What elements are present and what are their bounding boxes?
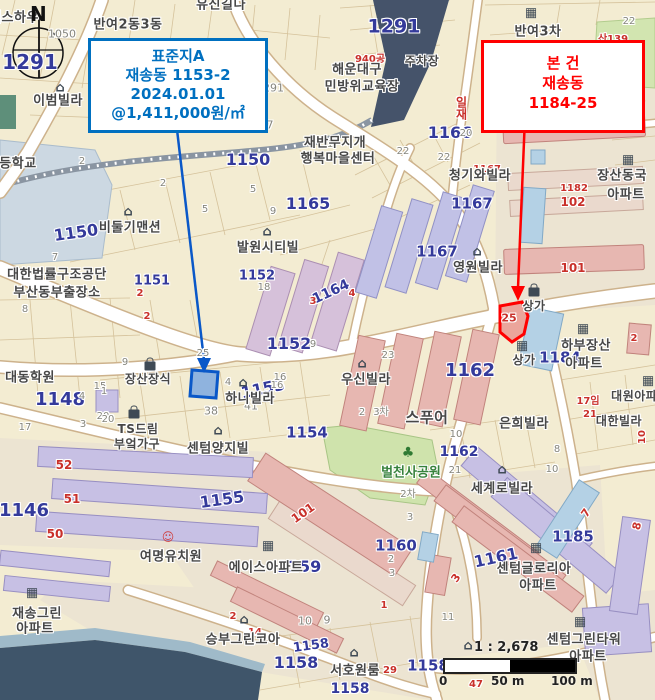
- parcel-number: 18: [258, 283, 271, 293]
- parcel-number: 1150: [53, 222, 99, 244]
- parcel-number: 5: [250, 185, 256, 195]
- parcel-number: 23: [382, 351, 395, 361]
- parcel-number: 101: [560, 262, 585, 274]
- parcel-number: 4: [225, 378, 231, 388]
- parcel-number: 1154: [286, 426, 328, 441]
- parcel-number: 1182: [560, 184, 588, 194]
- scale-tick-50: 50 m: [491, 674, 524, 688]
- place-label: 부엌가구: [114, 438, 160, 450]
- parcel-number: 29: [383, 666, 397, 676]
- parcel-number: 51: [64, 493, 81, 505]
- parcel-number: 1050: [48, 29, 76, 40]
- parcel-number: 3: [80, 420, 86, 430]
- place-label: 승부그린코아: [206, 634, 281, 647]
- parcel-number: 10: [638, 430, 648, 444]
- building-icon: ▦: [262, 540, 274, 553]
- subject-title: 본 건: [484, 53, 642, 73]
- parcel-number: 3차: [373, 408, 389, 418]
- parcel-number: 1148: [35, 391, 85, 409]
- parcel-number: 1146: [0, 502, 49, 520]
- parcel-number: 1152: [267, 336, 312, 352]
- place-label: 유신길다: [196, 0, 246, 12]
- parcel-number: 4: [79, 392, 85, 402]
- place-label: 주차장: [405, 55, 440, 67]
- place-label: 반여3차: [515, 26, 562, 39]
- place-label: 아파트: [607, 189, 644, 202]
- building-icon: ▦: [530, 542, 542, 555]
- place-label: 상가: [512, 354, 535, 366]
- compass-north-label: N: [30, 2, 47, 26]
- parcel-number: 2: [388, 555, 394, 565]
- parcel-number: 10: [546, 465, 559, 475]
- parcel-number: 25: [501, 313, 516, 324]
- building-icon: ▦: [525, 7, 537, 20]
- parcel-number: 21: [449, 466, 462, 476]
- place-label: 재송그린: [12, 608, 62, 621]
- standard-lot-address: 재송동 1153-2: [91, 66, 265, 85]
- building-icon: ▦: [516, 340, 528, 353]
- parcel-number: 1150: [226, 152, 271, 168]
- parcel-number: 3: [310, 297, 317, 307]
- parcel-number: 2: [631, 334, 638, 344]
- place-label: 재반무지개: [304, 137, 366, 150]
- house-icon: ⌂: [123, 206, 132, 219]
- parcel-number: 25: [197, 349, 210, 359]
- parcel-number: 101: [289, 501, 316, 525]
- cadastral-map: N 12911291116611671167115011501165116411…: [0, 0, 655, 700]
- parcel-number: 8: [631, 521, 644, 531]
- parcel-number: 4: [349, 289, 356, 299]
- parcel-number: 50: [47, 528, 64, 540]
- building-icon: ▦: [622, 154, 634, 167]
- parcel-number: 5: [202, 205, 208, 215]
- parcel-number: 22: [438, 153, 451, 163]
- parcel-number: 1291: [2, 52, 58, 72]
- parcel-number: 17: [19, 423, 32, 433]
- place-label: 서호원룸: [330, 665, 380, 678]
- parcel-number: 1167: [416, 245, 458, 260]
- place-label: 아파트: [519, 580, 556, 593]
- parcel-number: 1167: [451, 197, 493, 212]
- building-icon: ▦: [577, 323, 589, 336]
- scale-bar: 1 : 2,678 0 50 m 100 m: [436, 640, 596, 692]
- place-label: 센텀글로리아: [497, 563, 572, 576]
- standard-lot-price: @1,411,000원/㎡: [91, 104, 265, 123]
- parcel-number: 2: [144, 312, 151, 322]
- parcel-number: 9: [324, 615, 331, 626]
- standard-lot-callout: 표준지A 재송동 1153-2 2024.01.01 @1,411,000원/㎡: [88, 38, 268, 133]
- parcel-number: 17임: [576, 397, 599, 407]
- bag-icon: [129, 410, 140, 419]
- building-icon: ▦: [26, 587, 38, 600]
- parcel-number: 11: [442, 613, 455, 623]
- parcel-number: 21: [583, 410, 597, 420]
- parcel-number: 20: [460, 129, 473, 139]
- parcel-number: 1158: [274, 655, 319, 671]
- place-label: 대동학원: [5, 372, 55, 385]
- place-label: 상가: [522, 300, 545, 312]
- place-label: 하니빌라: [225, 393, 275, 406]
- parcel-number: 38: [204, 406, 218, 417]
- place-label: 여명유치원: [140, 551, 202, 564]
- place-label: 등학교: [0, 158, 37, 171]
- parcel-number: 7: [579, 507, 592, 520]
- subject-lot-number: 1184-25: [484, 93, 642, 113]
- parcel-number: 7: [52, 253, 58, 263]
- parcel-number: 일재: [455, 96, 467, 120]
- place-label: 아파트: [16, 623, 53, 636]
- parcel-number: 9: [122, 358, 128, 368]
- parcel-number: 1162: [440, 445, 479, 459]
- parcel-number: 2: [137, 289, 144, 299]
- house-icon: ⌂: [239, 614, 248, 627]
- parcel-number: 20: [102, 415, 115, 425]
- parcel-number: 16: [274, 373, 287, 383]
- building-icon: ▦: [642, 375, 654, 388]
- parcel-number: 52: [56, 459, 73, 471]
- parcel-number: 2: [160, 179, 166, 189]
- house-icon: ⌂: [262, 226, 271, 239]
- parcel-number: 2: [79, 157, 85, 167]
- house-icon: ⌂: [213, 425, 222, 438]
- building-icon: ▦: [574, 616, 586, 629]
- parcel-number: 3: [407, 513, 413, 523]
- parcel-number: 9: [270, 207, 276, 217]
- parcel-number: 1185: [552, 530, 594, 545]
- place-label: 센텀양지빌: [187, 443, 249, 456]
- house-icon: ⌂: [497, 464, 506, 477]
- place-label: 장산장식: [125, 373, 171, 385]
- subject-dong: 재송동: [484, 73, 642, 93]
- scale-tick-0: 0: [439, 674, 447, 688]
- parcel-number: 8: [554, 445, 560, 455]
- standard-lot-date: 2024.01.01: [91, 85, 265, 104]
- place-label: 민방위교육장: [325, 81, 400, 94]
- tree-icon: ♣: [402, 446, 415, 460]
- parcel-number: 22: [397, 147, 410, 157]
- scale-track: [443, 658, 577, 674]
- bag-icon: [145, 362, 156, 371]
- place-label: 장산동국: [597, 170, 647, 183]
- scale-segment-black: [510, 660, 575, 672]
- parcel-number: 1291: [368, 18, 421, 37]
- place-label: 대원아파트: [611, 390, 655, 402]
- bag-icon: [529, 288, 540, 297]
- place-label: 은희빌라: [499, 418, 549, 431]
- place-label: 우신빌라: [341, 374, 391, 387]
- place-label: 행복마을센터: [301, 153, 376, 166]
- place-label: 세계로빌라: [471, 483, 533, 496]
- place-label: 벌천사공원: [381, 467, 441, 480]
- place-label: 에이스아파트: [229, 562, 304, 575]
- parcel-number: 1151: [134, 275, 170, 288]
- place-label: 대한법률구조공단: [7, 269, 107, 282]
- parcel-number: 1164: [310, 277, 351, 306]
- place-label: 영원빌라: [453, 262, 503, 275]
- subject-property-callout: 본 건 재송동 1184-25: [481, 40, 645, 133]
- place-label: 비둘기맨션: [99, 222, 161, 235]
- parcel-number: 8: [22, 305, 28, 315]
- place-label: 청기와빌라: [449, 170, 511, 183]
- parcel-number: 22: [623, 17, 636, 27]
- place-label: 스푸어: [406, 411, 449, 426]
- house-icon: ⌂: [357, 358, 366, 371]
- scale-tick-100: 100 m: [551, 674, 593, 688]
- parcel-number: 1162: [445, 362, 495, 380]
- place-label: 반여2동3동: [94, 19, 163, 32]
- parcel-number: 9: [310, 340, 316, 350]
- scale-ratio: 1 : 2,678: [474, 640, 538, 655]
- parcel-number: 2차: [400, 490, 416, 500]
- parcel-number: 102: [560, 196, 585, 208]
- parcel-number: 1: [381, 601, 388, 611]
- parcel-number: 1158: [331, 682, 370, 696]
- standard-lot-title: 표준지A: [91, 47, 265, 66]
- child-icon: ☺: [162, 531, 175, 543]
- place-label: 아파트: [565, 358, 602, 371]
- place-label: 하부장산: [561, 340, 611, 353]
- parcel-number: 3: [449, 572, 462, 585]
- house-icon: ⌂: [238, 377, 247, 390]
- scale-segment-white: [445, 660, 510, 672]
- parcel-number: 2: [359, 408, 365, 418]
- parcel-number: 1155: [199, 489, 245, 511]
- place-label: 해운대구: [332, 64, 382, 77]
- parcel-number: 1152: [239, 270, 275, 283]
- parcel-number: 1160: [375, 539, 417, 554]
- house-icon: ⌂: [349, 647, 358, 660]
- place-label: 이범빌라: [33, 95, 83, 108]
- place-label: 발원시티빌: [237, 242, 299, 255]
- place-label: TS드림: [118, 423, 159, 435]
- place-label: 부산동부출장소: [13, 287, 100, 300]
- parcel-number: 2: [230, 612, 237, 622]
- parcel-number: 10: [298, 616, 312, 627]
- place-label: 대한빌라: [596, 415, 642, 427]
- house-icon: ⌂: [55, 82, 64, 95]
- parcel-number: 3: [389, 569, 395, 579]
- parcel-number: 10: [450, 430, 463, 440]
- parcel-number: 1165: [286, 196, 331, 212]
- house-icon: ⌂: [472, 246, 481, 259]
- parcel-number: 1: [101, 387, 107, 397]
